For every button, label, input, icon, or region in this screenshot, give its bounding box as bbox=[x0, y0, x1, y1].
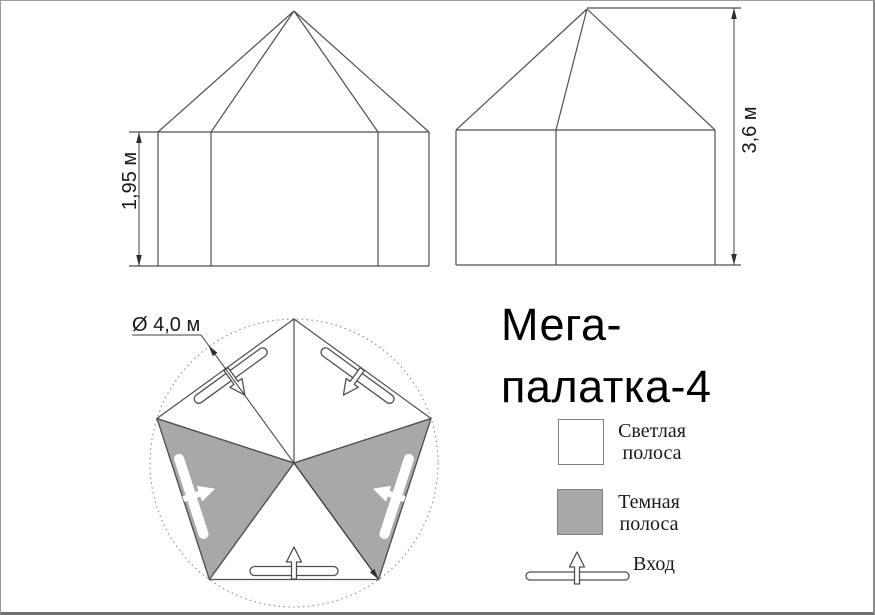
legend-light-label: Светлая полоса bbox=[602, 420, 702, 464]
legend-dark-label-line2: полоса bbox=[599, 513, 699, 535]
front-height-label: 1,95 м bbox=[119, 152, 141, 210]
legend-entrance-label: Вход bbox=[633, 553, 675, 576]
product-title: Мега- палатка-4 bbox=[501, 294, 712, 418]
entrance-symbol-top-right bbox=[308, 343, 398, 421]
dark-stripe-swatch-rect bbox=[558, 490, 603, 535]
diameter-label: Ø 4,0 м bbox=[132, 314, 200, 336]
front-view: 1,95 м bbox=[119, 11, 429, 266]
entrance-symbol-bottom bbox=[250, 547, 338, 579]
plan-view: Ø 4,0 м bbox=[132, 314, 438, 607]
dimension-arrow-down bbox=[136, 255, 142, 266]
drawing-page: 1,95 м 3,6 м Ø bbox=[0, 0, 875, 615]
dark-panel-left bbox=[157, 419, 294, 580]
side-roof-lines bbox=[456, 9, 715, 130]
front-wall-lines bbox=[129, 132, 429, 266]
product-title-line1: Мега- bbox=[501, 294, 712, 356]
legend-entrance-symbol bbox=[526, 552, 629, 584]
dark-panel-right bbox=[294, 419, 431, 580]
legend-dark-label: Темная полоса bbox=[599, 491, 699, 535]
side-wall-lines bbox=[456, 130, 741, 265]
dimension-arrow-up bbox=[731, 8, 737, 19]
tent-technical-drawing: 1,95 м 3,6 м Ø bbox=[1, 1, 875, 615]
side-height-label: 3,6 м bbox=[739, 106, 761, 153]
light-stripe-swatch-rect bbox=[559, 420, 604, 465]
dimension-arrow-down bbox=[731, 254, 737, 265]
legend-light-swatch bbox=[558, 419, 605, 466]
legend-dark-label-line1: Темная bbox=[599, 491, 699, 513]
front-roof-lines bbox=[158, 11, 429, 132]
dimension-arrow-up bbox=[136, 132, 142, 143]
legend-light-label-line1: Светлая bbox=[602, 420, 702, 442]
product-title-line2: палатка-4 bbox=[501, 356, 712, 418]
diameter-arrow-upper bbox=[209, 346, 218, 357]
side-view: 3,6 м bbox=[456, 8, 761, 265]
legend-dark-swatch bbox=[557, 489, 604, 536]
legend-light-label-line2: полоса bbox=[602, 442, 702, 464]
